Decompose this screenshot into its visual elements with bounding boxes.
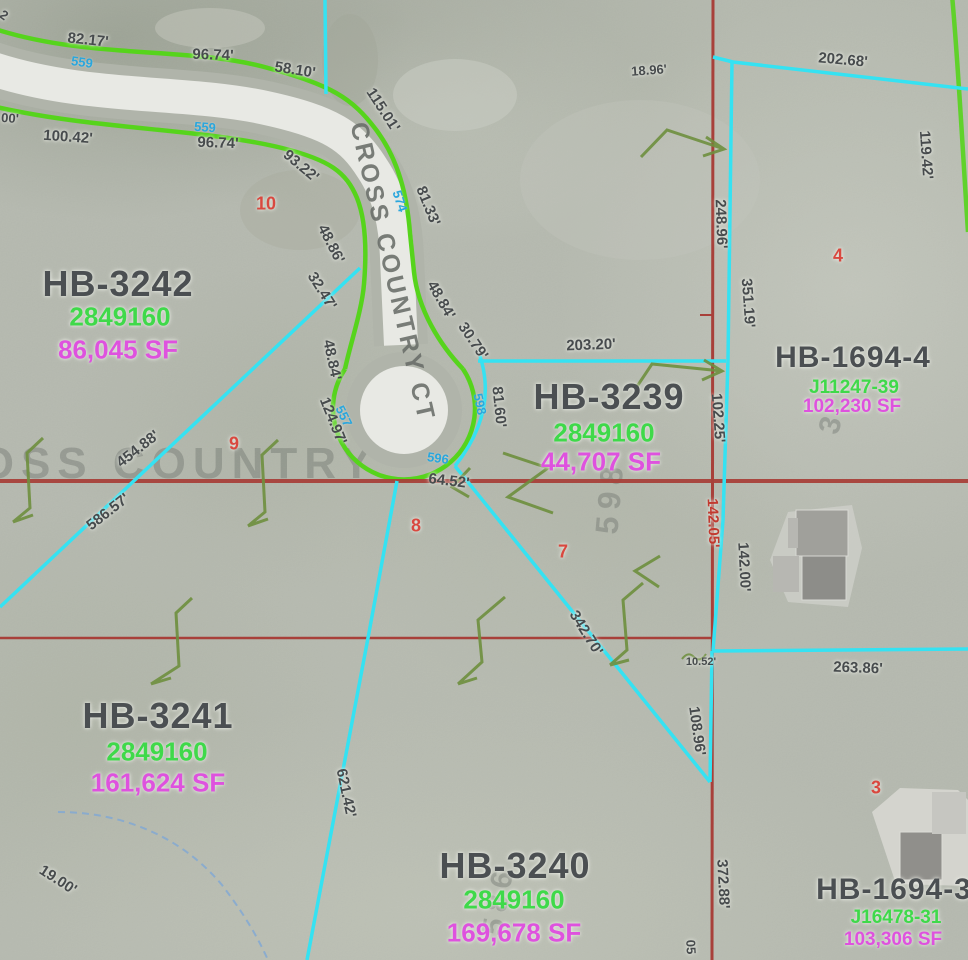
measurement-label: 19.00' <box>36 862 80 899</box>
measurement-label: 351.19' <box>738 278 758 329</box>
measurement-label: 203.20' <box>566 336 616 355</box>
parcel-area-label: 169,678 SF <box>447 918 581 949</box>
measurement-label: 248.96' <box>712 199 731 249</box>
parcel-id-label: 2849160 <box>106 737 207 768</box>
measurement-label: 93.22' <box>280 146 322 185</box>
measurement-label: 05 <box>683 939 699 954</box>
parcel-area-label: 161,624 SF <box>91 768 225 799</box>
parcel-name-label: HB-1694-3 <box>816 873 968 907</box>
measurement-label: 96.74' <box>192 46 234 64</box>
measurement-label: 142.00' <box>734 542 754 592</box>
contour-elevation-label: 596 <box>426 449 450 467</box>
lot-number-label: 3 <box>871 778 881 799</box>
measurement-label: 81.60' <box>488 386 509 429</box>
measurement-label: 202.68' <box>818 49 869 70</box>
measurement-label: 58.10' <box>273 58 316 81</box>
contour-elevation-label: 559 <box>194 119 217 135</box>
parcel-id-label: 2849160 <box>463 885 564 916</box>
parcel-id-label: J16478-31 <box>851 907 942 929</box>
parcel-area-label: 86,045 SF <box>58 335 178 366</box>
measurement-label: 18.96' <box>631 61 668 78</box>
contour-elevation-label: 559 <box>70 53 94 71</box>
measurement-label: 00' <box>1 110 20 126</box>
measurement-label: 2 <box>0 7 11 23</box>
measurement-label: 108.96' <box>685 705 709 756</box>
measurement-label: 48.86' <box>314 222 348 266</box>
measurement-label: 48.84' <box>423 278 458 322</box>
lot-number-label: 8 <box>411 516 421 537</box>
parcel-area-label: 103,306 SF <box>844 929 942 951</box>
measurement-label: 142.05' <box>704 498 723 548</box>
measurement-label: 96.74' <box>197 134 239 152</box>
measurement-label: 81.33' <box>412 184 443 228</box>
parcel-name-label: HB-1694-4 <box>775 341 931 375</box>
measurement-label: 10.52' <box>686 656 716 668</box>
lot-number-label: 9 <box>229 434 239 455</box>
measurement-label: 82.17' <box>67 29 110 50</box>
street-name-label: CROSS COUNTRY CT <box>343 119 440 424</box>
lot-number-label: 7 <box>558 542 568 563</box>
lot-number-label: 10 <box>256 194 276 215</box>
parcel-id-label: 2849160 <box>69 302 170 333</box>
measurement-label: 30.79' <box>454 319 491 363</box>
measurement-label: 372.88' <box>713 859 733 909</box>
parcel-name-label: HB-3241 <box>82 695 233 737</box>
parcel-name-label: HB-3240 <box>439 845 590 887</box>
measurement-label: 586.57' <box>83 490 132 534</box>
measurement-label: 621.42' <box>333 767 360 819</box>
measurement-label: 100.42' <box>43 127 94 147</box>
parcel-id-label: 2849160 <box>553 418 654 449</box>
parcel-name-label: HB-3239 <box>533 376 684 418</box>
contour-elevation-label: 598 <box>470 392 489 416</box>
measurement-label: 48.84' <box>319 338 344 382</box>
map-canvas[interactable]: CROSS COUNTRY5985863 <box>0 0 968 960</box>
parcel-area-label: 102,230 SF <box>803 396 901 418</box>
measurement-label: 342.70' <box>566 608 607 659</box>
measurement-label: 102.25' <box>708 393 728 444</box>
measurement-label: 64.52' <box>428 470 471 492</box>
measurement-label: 119.42' <box>916 130 936 180</box>
parcel-area-label: 44,707 SF <box>541 447 661 478</box>
measurement-label: 263.86' <box>833 659 883 678</box>
parcel-name-label: HB-3242 <box>42 263 193 305</box>
measurement-label: 32.47' <box>304 269 340 313</box>
lot-number-label: 4 <box>833 246 843 267</box>
measurement-label: 454.88' <box>113 427 162 471</box>
labels-layer: CROSS COUNTRY CT82.17'96.74'58.10'115.01… <box>0 0 968 960</box>
